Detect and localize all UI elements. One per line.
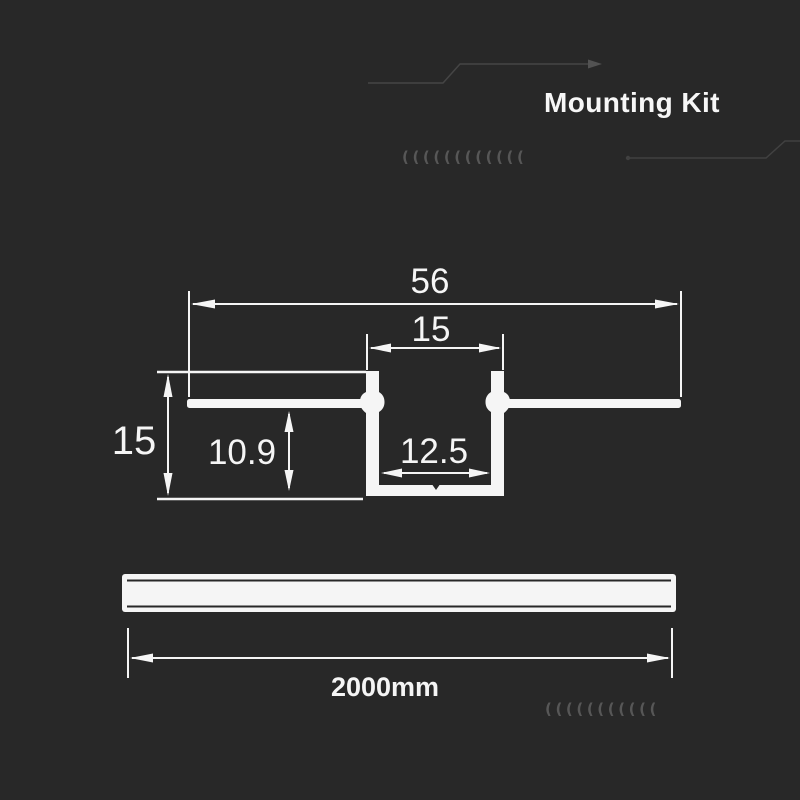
arrowhead-left-icon [191,300,215,309]
dim-length [128,628,672,678]
flange-right [502,399,681,408]
trace-arrow-icon [588,60,602,69]
arrowhead-up-icon [164,374,173,397]
dim-label-channel-width: 12.5 [400,432,468,471]
arrowhead-up-icon [285,411,294,432]
arrowhead-right-icon [479,344,501,353]
dim-overall-height [164,374,173,496]
chevron-strip-top-icon: (((((((((((( [402,150,527,165]
dim-label-top-opening: 15 [412,310,451,349]
circuit-trace-top [368,60,602,84]
page-title: Mounting Kit [544,87,754,119]
arrowhead-right-icon [655,300,679,309]
circuit-trace-right [626,141,800,160]
profile-length-bar [122,574,676,612]
circuit-line [368,64,590,83]
arrowhead-down-icon [164,473,173,496]
drawing-canvas: 56 15 15 10.9 12.5 2000mm [0,0,800,800]
arrowhead-left-icon [381,469,402,478]
dim-label-overall-width: 56 [411,262,450,301]
chevron-strip-bottom-icon: ((((((((((( [545,702,660,717]
arrowhead-left-icon [369,344,391,353]
dim-label-length: 2000mm [331,672,439,702]
arrowhead-down-icon [285,470,294,491]
arrowhead-right-icon [647,654,670,663]
circuit-line [628,141,800,158]
arrowhead-left-icon [130,654,153,663]
flange-left [187,399,368,408]
dim-label-inner-depth: 10.9 [208,433,276,472]
product-dimension-screen: 56 15 15 10.9 12.5 2000mm Mounting Kit (… [0,0,800,800]
arrowhead-right-icon [469,469,490,478]
dim-inner-depth [285,411,294,491]
dim-label-overall-height: 15 [112,419,157,463]
